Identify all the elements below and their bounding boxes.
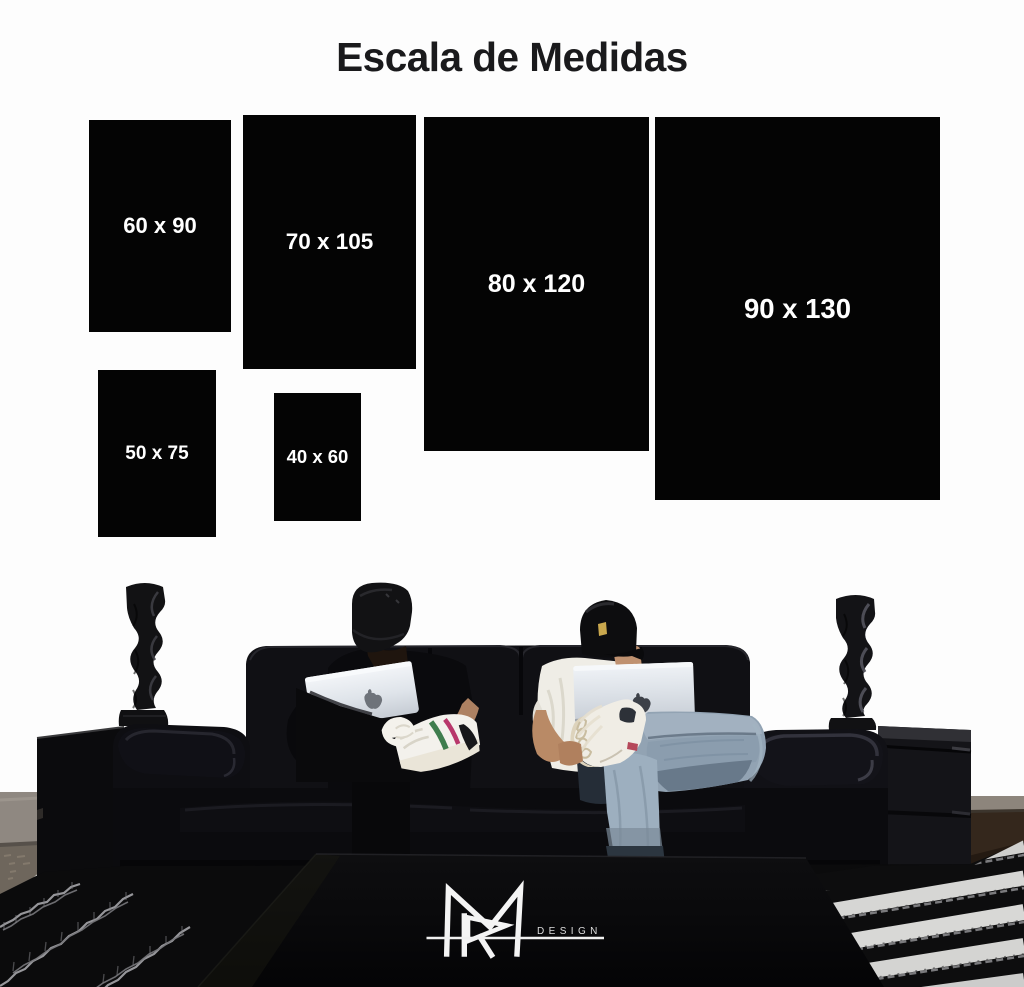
svg-text:DESIGN: DESIGN [537,926,602,937]
